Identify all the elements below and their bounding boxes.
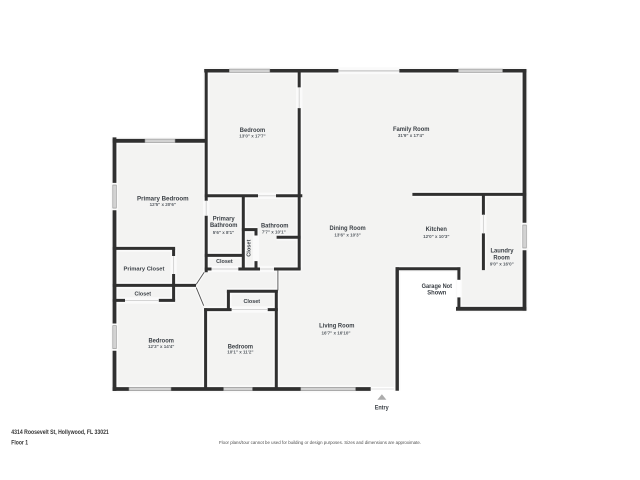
svg-text:9'0" x 16'0": 9'0" x 16'0"	[490, 262, 514, 268]
svg-text:Floor plans/tour cannot be use: Floor plans/tour cannot be used for buil…	[219, 440, 421, 445]
svg-text:10'1" x 11'2": 10'1" x 11'2"	[227, 350, 253, 356]
svg-text:Living Room: Living Room	[319, 323, 355, 330]
svg-text:Primary Closet: Primary Closet	[124, 266, 165, 272]
svg-text:Dining Room: Dining Room	[330, 225, 367, 232]
svg-text:Entry: Entry	[375, 404, 389, 411]
svg-text:Floor 1: Floor 1	[11, 440, 28, 447]
svg-text:13'0" x 17'7": 13'0" x 17'7"	[239, 134, 265, 140]
svg-text:Closet: Closet	[216, 259, 233, 265]
svg-text:Bedroom: Bedroom	[240, 127, 266, 134]
svg-text:Bathroom: Bathroom	[210, 222, 238, 229]
svg-text:Closet: Closet	[247, 240, 253, 257]
svg-text:Room: Room	[493, 255, 510, 262]
svg-text:Family Room: Family Room	[393, 126, 430, 133]
svg-text:Closet: Closet	[135, 291, 152, 297]
svg-text:Bedroom: Bedroom	[149, 337, 175, 344]
svg-text:12'0" x 10'3": 12'0" x 10'3"	[423, 234, 449, 240]
svg-text:12'3" x 14'4": 12'3" x 14'4"	[148, 344, 174, 350]
svg-text:13'6" x 10'3": 13'6" x 10'3"	[334, 233, 360, 239]
svg-text:31'9" x 17'4": 31'9" x 17'4"	[398, 133, 424, 139]
svg-text:Bedroom: Bedroom	[228, 343, 254, 350]
svg-text:Laundry: Laundry	[490, 247, 514, 254]
svg-text:Primary Bedroom: Primary Bedroom	[137, 195, 189, 202]
svg-text:Closet: Closet	[244, 299, 261, 305]
svg-text:7'7" x 10'1": 7'7" x 10'1"	[262, 230, 286, 236]
svg-text:4314 Roosevelt St, Hollywood,: 4314 Roosevelt St, Hollywood, FL 33021	[11, 429, 109, 436]
svg-text:16'7" x 16'10": 16'7" x 16'10"	[322, 330, 351, 336]
svg-text:Kitchen: Kitchen	[426, 226, 447, 233]
svg-text:Shown: Shown	[427, 289, 446, 296]
svg-text:Bathroom: Bathroom	[261, 223, 289, 230]
svg-text:5'6" x 8'1": 5'6" x 8'1"	[213, 230, 234, 236]
svg-text:12'5" x 20'6": 12'5" x 20'6"	[150, 202, 176, 208]
